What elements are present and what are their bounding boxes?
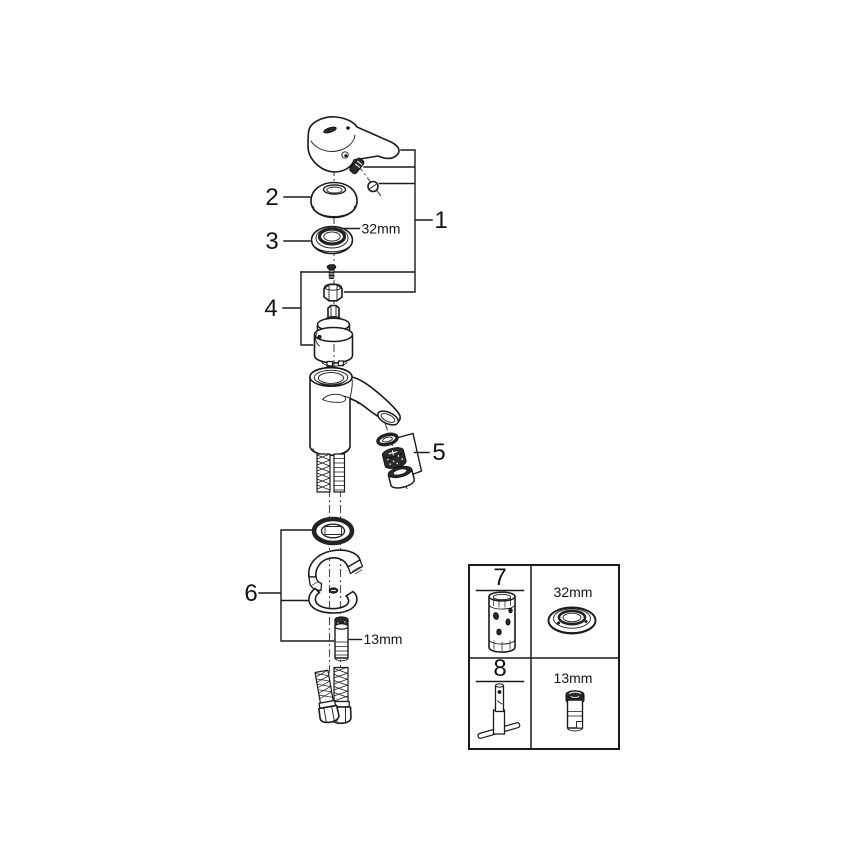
dome-cap [311, 183, 357, 218]
mounting-wedge [309, 550, 363, 590]
spares-cell-7: 7 [477, 564, 524, 652]
spares-cell-13mm: 13mm [554, 670, 593, 731]
callout-label-3: 3 [265, 228, 278, 255]
horseshoe-washer [309, 588, 357, 613]
mounting-sleeve-tool-icon [489, 592, 515, 652]
spares-cell-32mm-label: 32mm [554, 584, 593, 600]
spares-cell-32mm: 32mm [549, 584, 596, 634]
callout-line-6 [259, 530, 334, 641]
callout-label-5: 5 [432, 439, 445, 466]
callout-label-6: 6 [244, 580, 257, 607]
spares-cell-13mm-label: 13mm [554, 670, 593, 686]
screw-cover-cap [368, 182, 378, 192]
diagram-page: 1 2 3 4 5 6 32mm 13mm 7 [0, 0, 868, 868]
mounting-stud-spare-icon [566, 691, 584, 731]
ceramic-cartridge [315, 306, 353, 367]
cartridge-nut [324, 284, 342, 301]
dimension-label-13mm: 13mm [364, 631, 403, 647]
exploded-diagram-canvas: 1 2 3 4 5 6 32mm 13mm 7 [0, 0, 868, 868]
spares-cell-8: 8 [477, 655, 524, 739]
callout-label-2: 2 [265, 184, 278, 211]
aerator-washer [377, 432, 398, 446]
spares-cell-8-label: 8 [493, 655, 506, 682]
threaded-shank [317, 454, 345, 492]
socket-wrench-tool-icon [478, 684, 521, 739]
spares-box: 7 32mm [469, 564, 619, 749]
callout-label-1: 1 [434, 207, 447, 234]
escutcheon-ring-spare-icon [549, 608, 596, 634]
base-gasket [314, 519, 352, 543]
mounting-stud [335, 617, 348, 661]
spares-cell-7-label: 7 [493, 564, 506, 591]
escutcheon-ring [312, 227, 353, 254]
callout-label-4: 4 [264, 295, 277, 322]
spares-box-dividers [469, 565, 619, 749]
dimension-label-32mm: 32mm [362, 221, 401, 237]
callout-line-4 [283, 272, 313, 345]
